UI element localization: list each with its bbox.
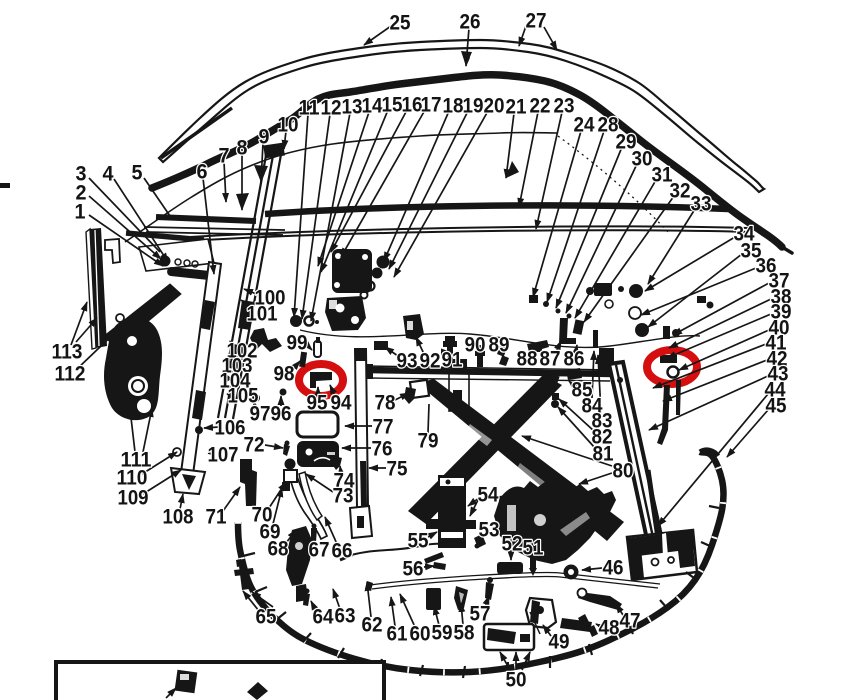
svg-text:65: 65 (256, 606, 277, 629)
svg-text:88: 88 (517, 348, 538, 371)
svg-text:113: 113 (52, 341, 83, 364)
svg-text:15: 15 (382, 94, 403, 117)
svg-text:51: 51 (523, 537, 544, 560)
svg-text:57: 57 (470, 603, 491, 626)
svg-text:109: 109 (118, 487, 149, 510)
svg-text:94: 94 (331, 392, 352, 415)
svg-text:81: 81 (593, 443, 614, 466)
svg-text:55: 55 (408, 530, 429, 553)
svg-text:78: 78 (375, 392, 396, 415)
svg-text:54: 54 (478, 484, 499, 507)
svg-text:60: 60 (410, 623, 431, 646)
svg-text:26: 26 (460, 11, 481, 34)
svg-text:19: 19 (463, 95, 484, 118)
svg-text:25: 25 (390, 12, 411, 35)
svg-text:16: 16 (402, 94, 423, 117)
svg-text:68: 68 (268, 538, 289, 561)
svg-text:49: 49 (549, 631, 570, 654)
svg-text:59: 59 (432, 622, 453, 645)
svg-text:79: 79 (418, 430, 439, 453)
svg-text:30: 30 (632, 148, 653, 171)
svg-text:107: 107 (208, 444, 239, 467)
svg-text:106: 106 (215, 417, 246, 440)
svg-text:46: 46 (603, 557, 624, 580)
svg-text:73: 73 (333, 485, 354, 508)
svg-text:96: 96 (271, 403, 292, 426)
svg-text:32: 32 (670, 180, 691, 203)
svg-text:3: 3 (76, 163, 87, 186)
svg-text:18: 18 (443, 95, 464, 118)
svg-text:62: 62 (362, 614, 383, 637)
svg-text:27: 27 (526, 10, 547, 33)
svg-text:7: 7 (219, 145, 230, 168)
svg-text:56: 56 (403, 558, 424, 581)
svg-text:12: 12 (321, 97, 342, 120)
svg-text:80: 80 (613, 460, 634, 483)
svg-text:33: 33 (691, 193, 712, 216)
svg-text:53: 53 (479, 519, 500, 542)
svg-text:13: 13 (342, 96, 363, 119)
svg-text:24: 24 (574, 114, 595, 137)
svg-text:77: 77 (373, 416, 394, 439)
svg-text:6: 6 (197, 161, 208, 184)
svg-text:95: 95 (307, 392, 328, 415)
svg-text:22: 22 (530, 95, 551, 118)
svg-text:8: 8 (237, 137, 248, 160)
svg-text:87: 87 (540, 348, 561, 371)
svg-text:11: 11 (299, 97, 320, 120)
svg-text:71: 71 (206, 506, 227, 529)
svg-text:97: 97 (250, 403, 271, 426)
svg-text:20: 20 (484, 95, 505, 118)
svg-text:64: 64 (313, 606, 334, 629)
svg-text:9: 9 (259, 126, 270, 149)
svg-text:10: 10 (278, 114, 299, 137)
svg-text:99: 99 (287, 332, 308, 355)
svg-text:23: 23 (554, 95, 575, 118)
svg-text:66: 66 (332, 540, 353, 563)
svg-text:91: 91 (442, 349, 463, 372)
svg-text:61: 61 (387, 623, 408, 646)
svg-text:72: 72 (244, 434, 265, 457)
svg-text:108: 108 (163, 506, 194, 529)
svg-text:52: 52 (502, 533, 523, 556)
svg-text:4: 4 (103, 163, 114, 186)
svg-text:45: 45 (766, 395, 787, 418)
svg-text:14: 14 (362, 95, 383, 118)
svg-text:75: 75 (387, 458, 408, 481)
svg-text:112: 112 (55, 363, 86, 386)
svg-text:5: 5 (132, 162, 143, 185)
svg-text:47: 47 (620, 610, 641, 633)
svg-text:93: 93 (397, 350, 418, 373)
svg-text:90: 90 (465, 334, 486, 357)
svg-text:86: 86 (564, 348, 585, 371)
svg-text:98: 98 (274, 363, 295, 386)
svg-text:63: 63 (335, 605, 356, 628)
svg-text:48: 48 (599, 617, 620, 640)
svg-text:17: 17 (421, 94, 442, 117)
svg-text:50: 50 (506, 669, 527, 692)
svg-text:89: 89 (489, 334, 510, 357)
svg-text:21: 21 (506, 96, 527, 119)
svg-text:101: 101 (247, 303, 278, 326)
svg-text:67: 67 (309, 539, 330, 562)
svg-text:92: 92 (420, 350, 441, 373)
